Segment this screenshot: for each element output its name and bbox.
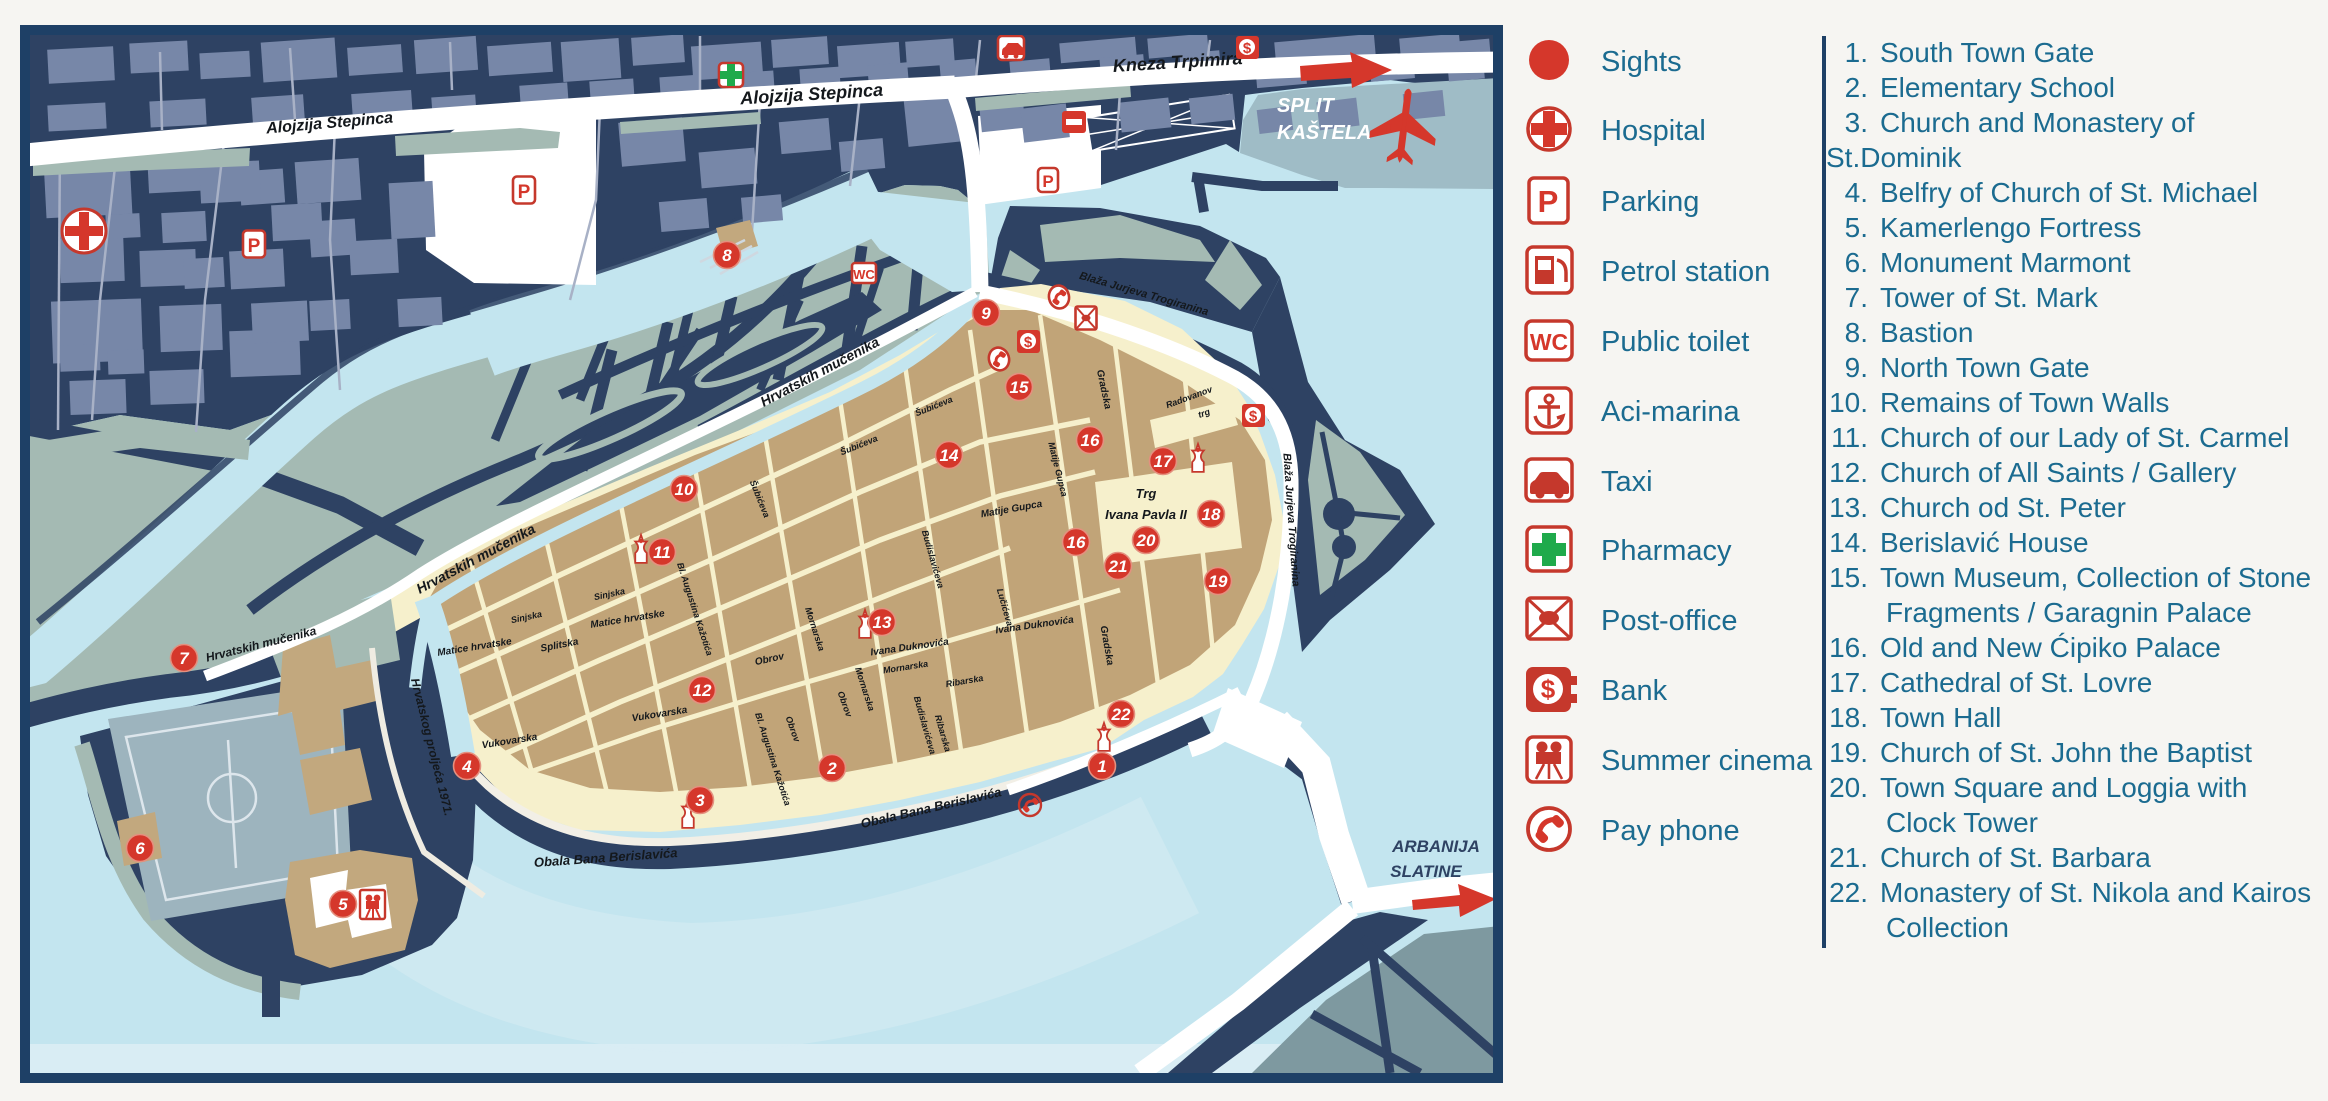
svg-text:Pay phone: Pay phone [1601, 815, 1740, 847]
svg-text:20: 20 [1136, 531, 1156, 550]
svg-text:Church and Monastery of: Church and Monastery of [1880, 107, 2195, 138]
svg-text:12: 12 [693, 681, 712, 700]
svg-text:8: 8 [722, 246, 732, 265]
svg-text:21.: 21. [1829, 842, 1868, 873]
svg-text:3.: 3. [1845, 107, 1868, 138]
svg-text:Ivana Pavla II: Ivana Pavla II [1105, 507, 1187, 522]
svg-text:$: $ [1243, 40, 1252, 57]
svg-text:12.: 12. [1829, 457, 1868, 488]
svg-text:3: 3 [695, 791, 705, 810]
svg-text:16: 16 [1067, 533, 1086, 552]
svg-text:18.: 18. [1829, 702, 1868, 733]
svg-text:Parking: Parking [1601, 186, 1699, 218]
svg-text:13: 13 [873, 613, 892, 632]
svg-text:6: 6 [135, 839, 145, 858]
svg-text:$: $ [1024, 334, 1033, 351]
svg-text:19: 19 [1209, 572, 1228, 591]
svg-text:Old and New Ćipiko Palace: Old and New Ćipiko Palace [1880, 632, 2221, 663]
svg-text:Aci-marina: Aci-marina [1601, 396, 1740, 428]
svg-text:Church od St. Peter: Church od St. Peter [1880, 492, 2126, 523]
svg-text:8.: 8. [1845, 317, 1868, 348]
svg-text:7.: 7. [1845, 282, 1868, 313]
svg-text:St.Dominik: St.Dominik [1826, 142, 1962, 173]
svg-text:11: 11 [653, 543, 671, 562]
svg-text:P: P [1042, 172, 1053, 191]
svg-text:P: P [1538, 184, 1559, 219]
svg-text:Summer cinema: Summer cinema [1601, 745, 1813, 777]
svg-text:Petrol station: Petrol station [1601, 256, 1770, 288]
svg-text:1: 1 [1097, 757, 1106, 776]
svg-text:Church of our Lady of St. Carm: Church of our Lady of St. Carmel [1880, 422, 2289, 453]
svg-text:1.: 1. [1845, 37, 1868, 68]
svg-text:Cathedral of St. Lovre: Cathedral of St. Lovre [1880, 667, 2152, 698]
svg-text:10.: 10. [1829, 387, 1868, 418]
svg-text:Town Square and Loggia with: Town Square and Loggia with [1880, 772, 2247, 803]
svg-text:10: 10 [675, 480, 694, 499]
svg-text:18: 18 [1202, 505, 1221, 524]
svg-text:14: 14 [940, 446, 959, 465]
svg-text:Post-office: Post-office [1601, 605, 1737, 637]
svg-text:Berislavić House: Berislavić House [1880, 527, 2089, 558]
svg-text:Town Hall: Town Hall [1880, 702, 2001, 733]
svg-text:Clock Tower: Clock Tower [1886, 807, 2038, 838]
svg-text:2: 2 [826, 759, 837, 778]
svg-text:Belfry of Church of St. Michae: Belfry of Church of St. Michael [1880, 177, 2258, 208]
svg-text:Remains of Town Walls: Remains of Town Walls [1880, 387, 2169, 418]
svg-text:Church of All Saints / Gallery: Church of All Saints / Gallery [1880, 457, 2236, 488]
svg-text:North Town Gate: North Town Gate [1880, 352, 2090, 383]
svg-text:Pharmacy: Pharmacy [1601, 535, 1732, 567]
svg-text:16: 16 [1081, 431, 1100, 450]
svg-text:15: 15 [1010, 378, 1029, 397]
svg-text:WC: WC [1530, 329, 1568, 355]
svg-text:17.: 17. [1829, 667, 1868, 698]
svg-text:6.: 6. [1845, 247, 1868, 278]
svg-text:Fragments / Garagnin Palace: Fragments / Garagnin Palace [1886, 597, 2252, 628]
svg-text:ARBANIJA: ARBANIJA [1391, 837, 1480, 856]
svg-text:Church of St. Barbara: Church of St. Barbara [1880, 842, 2151, 873]
svg-text:P: P [248, 236, 261, 257]
svg-text:11.: 11. [1831, 422, 1868, 453]
svg-text:Elementary School: Elementary School [1880, 72, 2115, 103]
svg-text:9.: 9. [1845, 352, 1868, 383]
svg-text:19.: 19. [1829, 737, 1868, 768]
svg-text:Monastery of St. Nikola and Ka: Monastery of St. Nikola and Kairos [1880, 877, 2311, 908]
svg-text:5.: 5. [1845, 212, 1868, 243]
svg-text:2.: 2. [1845, 72, 1868, 103]
svg-text:Taxi: Taxi [1601, 466, 1653, 498]
svg-text:Sights: Sights [1601, 46, 1682, 78]
svg-text:4.: 4. [1845, 177, 1868, 208]
svg-text:South Town Gate: South Town Gate [1880, 37, 2094, 68]
svg-text:Tower of St. Mark: Tower of St. Mark [1880, 282, 2099, 313]
svg-text:7: 7 [179, 649, 190, 668]
svg-text:Town Museum, Collection of Sto: Town Museum, Collection of Stone [1880, 562, 2311, 593]
svg-text:Bank: Bank [1601, 675, 1668, 707]
svg-text:P: P [518, 182, 531, 203]
svg-text:20.: 20. [1829, 772, 1868, 803]
svg-text:13.: 13. [1829, 492, 1868, 523]
svg-text:16.: 16. [1829, 632, 1868, 663]
svg-text:KAŠTELA: KAŠTELA [1277, 120, 1371, 144]
svg-text:9: 9 [981, 304, 991, 323]
svg-text:$: $ [1249, 408, 1258, 425]
svg-text:4: 4 [461, 757, 472, 776]
svg-text:Trg: Trg [1136, 486, 1157, 501]
svg-text:$: $ [1541, 674, 1556, 704]
svg-text:Monument Marmont: Monument Marmont [1880, 247, 2131, 278]
svg-text:5: 5 [338, 895, 348, 914]
svg-text:Public toilet: Public toilet [1601, 326, 1749, 358]
svg-text:22: 22 [1111, 705, 1131, 724]
svg-text:17: 17 [1154, 452, 1174, 471]
svg-text:Bastion: Bastion [1880, 317, 1973, 348]
svg-text:Hospital: Hospital [1601, 115, 1706, 147]
svg-text:21: 21 [1108, 557, 1128, 576]
svg-text:WC: WC [853, 267, 875, 282]
svg-text:SPLIT: SPLIT [1277, 95, 1335, 117]
svg-text:Church of St. John the Baptist: Church of St. John the Baptist [1880, 737, 2252, 768]
svg-text:Collection: Collection [1886, 912, 2009, 943]
svg-text:SLATINE: SLATINE [1390, 862, 1462, 881]
svg-text:14.: 14. [1829, 527, 1868, 558]
svg-text:Kamerlengo Fortress: Kamerlengo Fortress [1880, 212, 2141, 243]
svg-text:15.: 15. [1829, 562, 1868, 593]
svg-text:22.: 22. [1829, 877, 1868, 908]
